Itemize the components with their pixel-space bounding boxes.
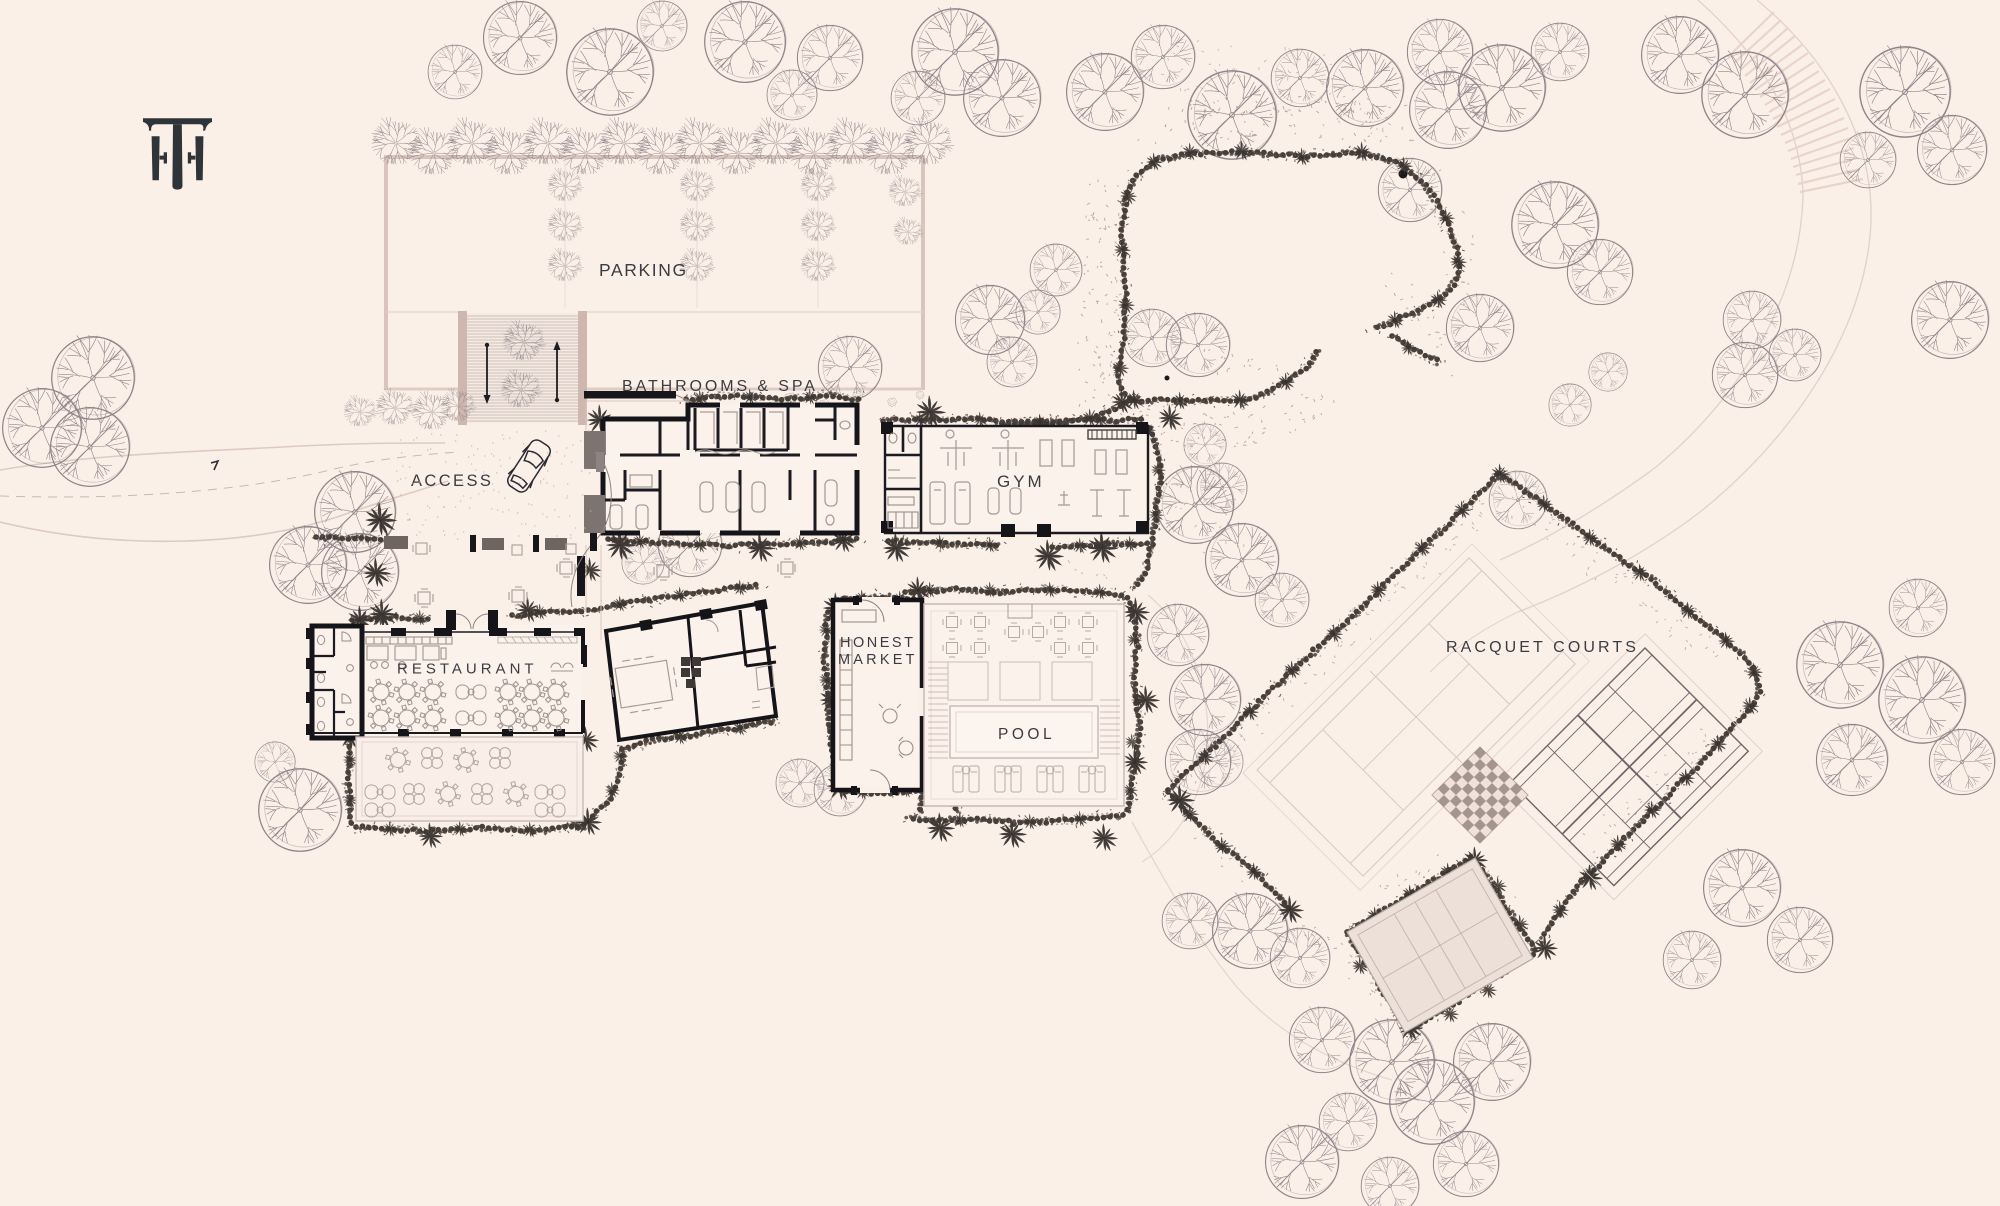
svg-text:RACQUET COURTS: RACQUET COURTS <box>1446 639 1639 656</box>
svg-text:HONEST: HONEST <box>840 635 915 651</box>
svg-text:MARKET: MARKET <box>838 652 918 668</box>
svg-text:ACCESS: ACCESS <box>411 472 493 490</box>
svg-text:RESTAURANT: RESTAURANT <box>397 661 538 678</box>
svg-text:GYM: GYM <box>997 472 1045 491</box>
svg-text:POOL: POOL <box>998 726 1055 743</box>
svg-text:PARKING: PARKING <box>599 260 688 280</box>
svg-text:BATHROOMS & SPA: BATHROOMS & SPA <box>622 378 818 395</box>
